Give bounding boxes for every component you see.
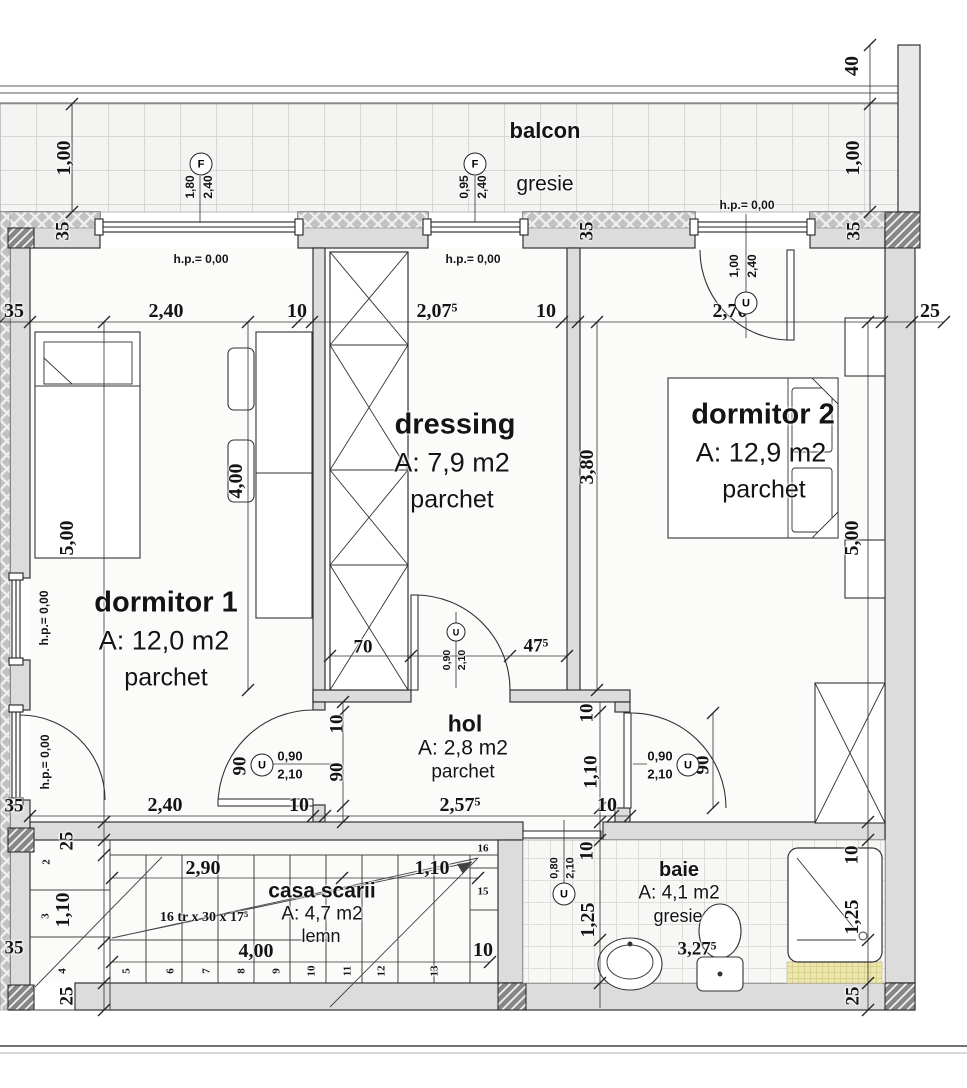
- page-divider: [0, 1046, 967, 1053]
- level-label-window1: h.p.= 0,00: [173, 253, 228, 265]
- door-balcony-width: 1,00: [728, 254, 740, 277]
- dim-right-125: 1,25: [842, 900, 862, 935]
- dim-bottom-2: 2,57⁵: [440, 795, 481, 815]
- room-label-hol: hol: [448, 713, 483, 736]
- dim-baie-width: 3,27⁵: [678, 940, 717, 959]
- dim-hol-left-10: 10: [328, 715, 347, 734]
- area-label-dressing: A: 7,9 m2: [394, 450, 510, 477]
- dim-top-6: 25: [920, 301, 940, 321]
- stair-number: 9: [272, 968, 283, 974]
- dim-left-25b: 25: [58, 987, 77, 1006]
- dim-top-0: 35: [4, 301, 24, 321]
- area-label-dormitor1: A: 12,0 m2: [99, 628, 230, 655]
- door-baie-width: 0,80: [550, 857, 561, 878]
- stair-number: 6: [166, 968, 177, 974]
- stair-number: 16: [478, 844, 489, 855]
- room-label-dormitor1: dormitor 1: [94, 589, 237, 618]
- stair-number: 8: [237, 968, 248, 974]
- dim-stair-290: 2,90: [186, 858, 221, 878]
- dim-top-3: 2,07⁵: [417, 301, 458, 321]
- dim-dressing-door-offset: 47⁵: [524, 637, 549, 656]
- dim-top-1: 2,40: [149, 301, 184, 321]
- stair-number: 15: [478, 887, 489, 898]
- dim-bottom-0: 2,40: [148, 795, 183, 815]
- dim-balcony-right: 1,00: [843, 141, 863, 176]
- dim-dorm2-len: 5,00: [842, 521, 862, 556]
- dim-baie-10: 10: [578, 842, 597, 861]
- stair-number: 7: [202, 968, 213, 974]
- door-marker-dormitor2-icon: U: [677, 754, 700, 777]
- dim-right-10: 10: [843, 846, 862, 865]
- dim-left-110: 1,10: [53, 893, 73, 928]
- window-f2-height: 2,40: [476, 175, 488, 198]
- door-dormitor1-height: 2,10: [277, 768, 302, 781]
- room-label-dormitor2: dormitor 2: [691, 401, 834, 430]
- dim-wall35-mid: 35: [578, 222, 597, 241]
- dim-top-4: 10: [536, 301, 556, 321]
- room-label-balcon: balcon: [510, 120, 581, 142]
- door-marker-baie-icon: U: [553, 883, 576, 906]
- window-marker-f1-icon: F: [190, 153, 213, 176]
- dim-right-25: 25: [844, 987, 863, 1006]
- stair-number: 12: [377, 966, 388, 977]
- door-baie-height: 2,10: [566, 857, 577, 878]
- dim-left-35a: 35: [5, 797, 24, 816]
- door-dressing-width: 0,90: [442, 650, 453, 670]
- finish-label-baie: gresie: [653, 907, 702, 925]
- stair-number: 4: [58, 968, 69, 974]
- finish-label-dressing: parchet: [410, 488, 493, 513]
- area-label-baie: A: 4,1 m2: [638, 884, 719, 903]
- dim-hol-right-10: 10: [578, 704, 597, 723]
- stair-number: 13: [430, 966, 441, 977]
- dim-hol-left-90: 90: [328, 763, 347, 782]
- finish-label-hol: parchet: [431, 763, 494, 782]
- dim-parapet: 40: [842, 56, 862, 76]
- dim-hol-right-110: 1,10: [582, 755, 601, 788]
- door-balcony-height: 2,40: [746, 254, 758, 277]
- window-f2-width: 0,95: [458, 175, 470, 198]
- dim-stair-400: 4,00: [239, 941, 274, 961]
- floor-plan: balcon gresie 1,00 1,00 40 F 1,80 2,40 F…: [0, 0, 967, 1088]
- stair-number: 5: [122, 968, 133, 974]
- window-f1-width: 1,80: [184, 175, 196, 198]
- door-dormitor2-height: 2,10: [647, 768, 672, 781]
- dim-dorm1-inner: 4,00: [226, 464, 246, 499]
- room-label-casa-scarii: casa scarii: [268, 881, 375, 902]
- dim-bottom-1: 10: [289, 795, 309, 815]
- dim-wall35-left: 35: [54, 222, 73, 241]
- room-label-dressing: dressing: [395, 411, 516, 440]
- door-marker-balcony-icon: U: [735, 292, 758, 315]
- level-label-balcony-door: h.p.= 0,00: [719, 199, 774, 211]
- window-marker-f2-icon: F: [464, 153, 487, 176]
- level-label-left-window2: h.p.= 0,00: [39, 734, 51, 789]
- dim-bottom-3: 10: [597, 795, 617, 815]
- level-label-window2: h.p.= 0,00: [445, 253, 500, 265]
- door-dormitor1-width: 0,90: [277, 750, 302, 763]
- room-label-baie: baie: [659, 860, 699, 880]
- area-label-casa-scarii: A: 4,7 m2: [281, 905, 362, 924]
- dim-stair-110: 1,10: [415, 858, 450, 878]
- area-label-dormitor2: A: 12,9 m2: [696, 440, 827, 467]
- stair-number: 2: [42, 859, 53, 865]
- level-label-left-window1: h.p.= 0,00: [38, 590, 50, 645]
- stair-number: 3: [41, 913, 52, 919]
- stair-spec: 16 tr x 30 x 17⁵: [160, 911, 248, 925]
- finish-label-balcon: gresie: [516, 174, 573, 195]
- finish-label-dormitor2: parchet: [722, 478, 805, 503]
- finish-label-casa-scarii: lemn: [301, 927, 340, 945]
- door-dressing-height: 2,10: [457, 650, 468, 670]
- dim-dorm1-len: 5,00: [57, 521, 77, 556]
- dim-balcony-left: 1,00: [54, 141, 74, 176]
- dim-door1-90: 90: [231, 757, 250, 776]
- area-label-hol: A: 2,8 m2: [418, 738, 508, 759]
- door-marker-dormitor1-icon: U: [251, 754, 274, 777]
- dim-stair-wall-10: 10: [473, 940, 493, 960]
- window-f1-height: 2,40: [202, 175, 214, 198]
- dim-left-25a: 25: [58, 832, 77, 851]
- finish-label-dormitor1: parchet: [124, 666, 207, 691]
- dim-wall35-right: 35: [845, 222, 864, 241]
- door-dormitor2-width: 0,90: [647, 750, 672, 763]
- door-marker-dressing-icon: U: [447, 623, 466, 642]
- dim-left-35b: 35: [5, 939, 24, 958]
- dim-dressing-len: 3,80: [577, 450, 597, 485]
- stair-number: 10: [307, 966, 318, 977]
- dim-top-2: 10: [287, 301, 307, 321]
- dim-baie-125: 1,25: [578, 903, 598, 938]
- dim-wardrobe-width: 70: [354, 638, 373, 657]
- stair-number: 11: [343, 966, 354, 976]
